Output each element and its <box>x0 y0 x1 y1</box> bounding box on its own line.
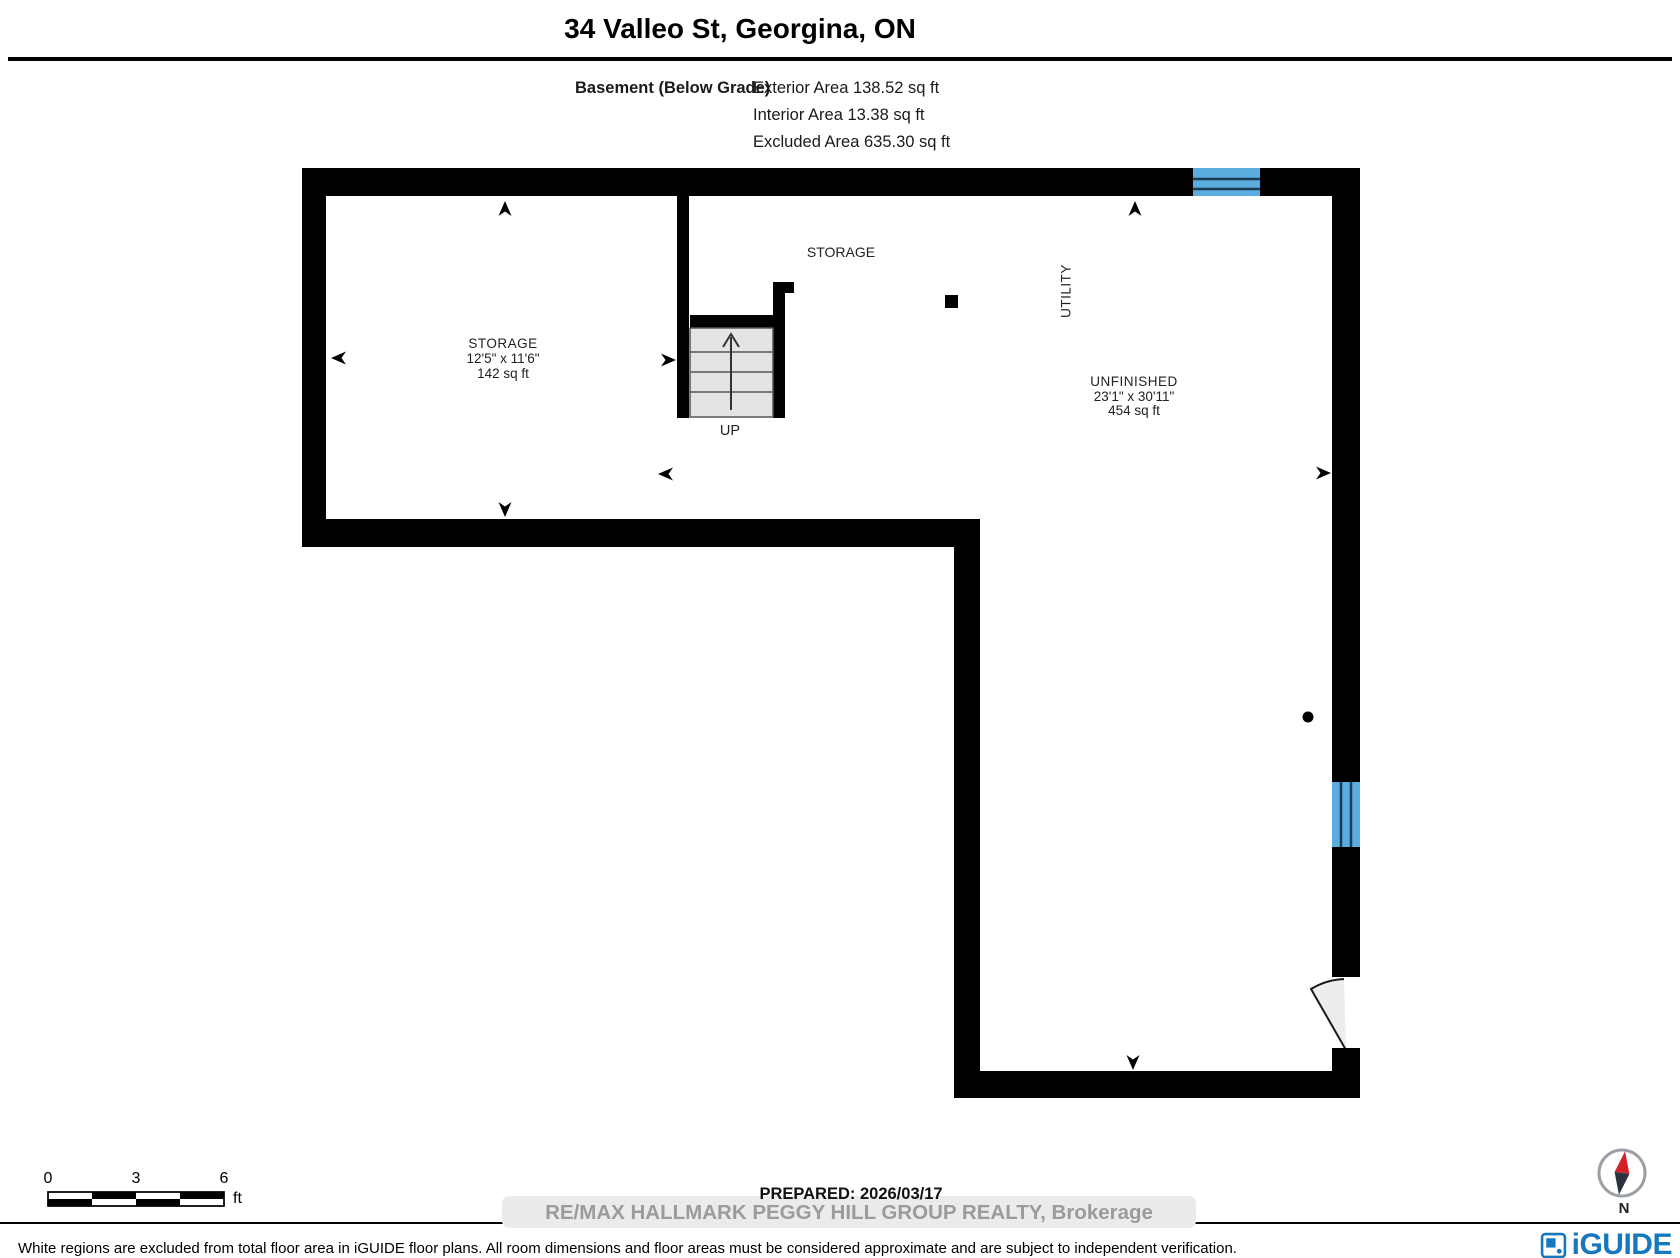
arrow-left-storage <box>331 352 346 365</box>
wall-stair-top <box>690 315 773 328</box>
room-area: 142 sq ft <box>466 366 539 381</box>
scale-tick-6: 6 <box>220 1170 229 1188</box>
room-name: UNFINISHED <box>1090 375 1178 390</box>
iguide-logo: iGUIDE <box>1540 1228 1672 1258</box>
room-label-storage-open: STORAGE <box>807 245 875 260</box>
window-right <box>1332 782 1360 847</box>
prepared-date: PREPARED: 2026/03/17 <box>759 1185 942 1204</box>
arrow-down-storage <box>499 502 512 517</box>
stairs-up-label: UP <box>720 423 740 439</box>
window-top <box>1193 168 1260 196</box>
wall-left <box>302 168 326 547</box>
wall-stair-right-stub <box>773 282 794 293</box>
support-column-dot <box>1303 712 1314 723</box>
arrow-left-unfinished <box>658 468 673 481</box>
room-name: STORAGE <box>466 336 539 351</box>
arrow-down-unfinished <box>1127 1055 1140 1070</box>
compass-north-label: N <box>1619 1200 1630 1217</box>
room-label-utility: UTILITY <box>1059 264 1074 318</box>
door-swing <box>1311 979 1346 1050</box>
floor-plan-drawing <box>0 0 1680 1258</box>
support-post <box>945 295 958 308</box>
floor-plan-page: 34 Valleo St, Georgina, ON Basement (Bel… <box>0 0 1680 1258</box>
room-dimensions: 23'1" x 30'11" <box>1090 390 1178 405</box>
iguide-logo-text: iGUIDE <box>1572 1228 1672 1258</box>
wall-right-door-stub <box>1332 1048 1360 1098</box>
footer-disclaimer: White regions are excluded from total fl… <box>18 1240 1237 1257</box>
wall-bottom <box>954 1071 1360 1098</box>
brokerage-watermark: RE/MAX HALLMARK PEGGY HILL GROUP REALTY,… <box>545 1201 1153 1225</box>
arrow-up-unfinished <box>1129 201 1142 216</box>
staircase <box>690 328 773 417</box>
dimension-arrows <box>331 201 1331 1070</box>
walls <box>302 168 1360 1098</box>
room-area: 454 sq ft <box>1090 404 1178 419</box>
arrow-right-unfinished <box>1316 467 1331 480</box>
scale-tick-0: 0 <box>44 1170 53 1188</box>
arrow-right-storage <box>661 354 676 367</box>
arrow-up-storage <box>499 201 512 216</box>
scale-bar <box>48 1192 224 1206</box>
iguide-logo-icon <box>1540 1232 1567 1258</box>
scale-unit: ft <box>233 1190 242 1208</box>
room-label-unfinished: UNFINISHED 23'1" x 30'11" 454 sq ft <box>1090 375 1178 419</box>
compass-icon <box>1596 1147 1648 1199</box>
wall-upper-room-bottom <box>302 519 980 547</box>
wall-right-upper <box>1332 168 1360 782</box>
room-dimensions: 12'5" x 11'6" <box>466 351 539 366</box>
scale-tick-3: 3 <box>132 1170 141 1188</box>
room-label-storage: STORAGE 12'5" x 11'6" 142 sq ft <box>466 336 539 381</box>
wall-lower-left <box>954 519 980 1098</box>
wall-stair-right <box>773 282 785 418</box>
wall-right-mid <box>1332 847 1360 977</box>
wall-stair-left <box>677 196 689 418</box>
